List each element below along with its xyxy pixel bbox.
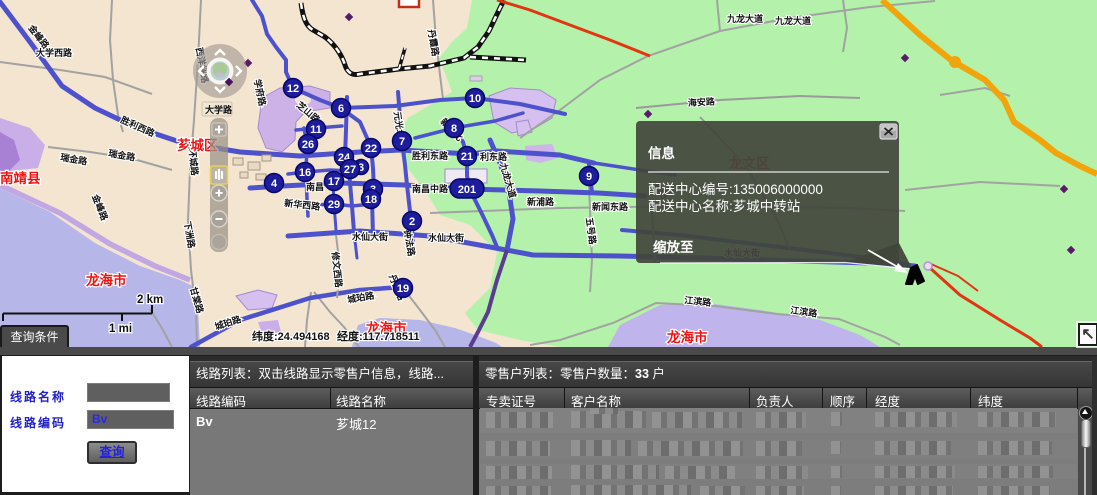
svg-text:2 km: 2 km: [137, 294, 163, 306]
svg-text:九龙大道: 九龙大道: [774, 15, 811, 26]
svg-text:利东路: 利东路: [479, 151, 508, 162]
svg-text:配送中心名称:芗城中转站: 配送中心名称:芗城中转站: [648, 199, 800, 214]
svg-text:21: 21: [461, 151, 473, 163]
svg-text:海安路: 海安路: [688, 96, 717, 108]
svg-text:大学路: 大学路: [205, 104, 233, 115]
svg-text:26: 26: [302, 139, 314, 151]
svg-text:19: 19: [397, 283, 409, 295]
svg-text:2: 2: [409, 216, 415, 228]
svg-text:信息: 信息: [648, 145, 676, 161]
svg-text:22: 22: [365, 143, 377, 155]
svg-text:12: 12: [287, 83, 299, 95]
svg-text:17: 17: [328, 176, 340, 188]
svg-text:经度:117.718511: 经度:117.718511: [337, 329, 420, 343]
svg-text:27: 27: [344, 164, 356, 176]
svg-text:1 mi: 1 mi: [109, 323, 132, 335]
svg-text:9: 9: [586, 171, 592, 183]
svg-text:7: 7: [399, 136, 405, 148]
svg-text:29: 29: [328, 199, 340, 211]
svg-text:18: 18: [365, 194, 377, 206]
svg-text:11: 11: [310, 124, 322, 136]
svg-text:201: 201: [458, 184, 476, 196]
svg-text:16: 16: [299, 167, 311, 179]
svg-text:8: 8: [451, 123, 457, 135]
svg-text:新闻东路: 新闻东路: [592, 201, 629, 212]
svg-text:南昌中路: 南昌中路: [412, 183, 449, 194]
svg-text:水仙大街: 水仙大街: [428, 232, 464, 243]
svg-text:6: 6: [338, 103, 344, 115]
svg-text:大学西路: 大学西路: [36, 47, 73, 58]
svg-text:配送中心编号:135006000000: 配送中心编号:135006000000: [648, 182, 823, 197]
svg-text:龙海市: 龙海市: [85, 272, 127, 288]
svg-text:新浦路: 新浦路: [527, 196, 555, 207]
svg-text:4: 4: [271, 178, 278, 190]
svg-text:10: 10: [469, 93, 481, 105]
svg-text:胜利东路: 胜利东路: [411, 150, 449, 161]
svg-text:龙海市: 龙海市: [666, 329, 708, 345]
svg-text:纬度:24.494168: 纬度:24.494168: [252, 329, 330, 343]
svg-text:九龙大道: 九龙大道: [726, 13, 763, 24]
svg-text:缩放至: 缩放至: [653, 239, 694, 255]
svg-text:南靖县: 南靖县: [0, 170, 41, 186]
svg-text:南昌: 南昌: [306, 181, 324, 192]
svg-text:水仙大街: 水仙大街: [352, 231, 388, 242]
